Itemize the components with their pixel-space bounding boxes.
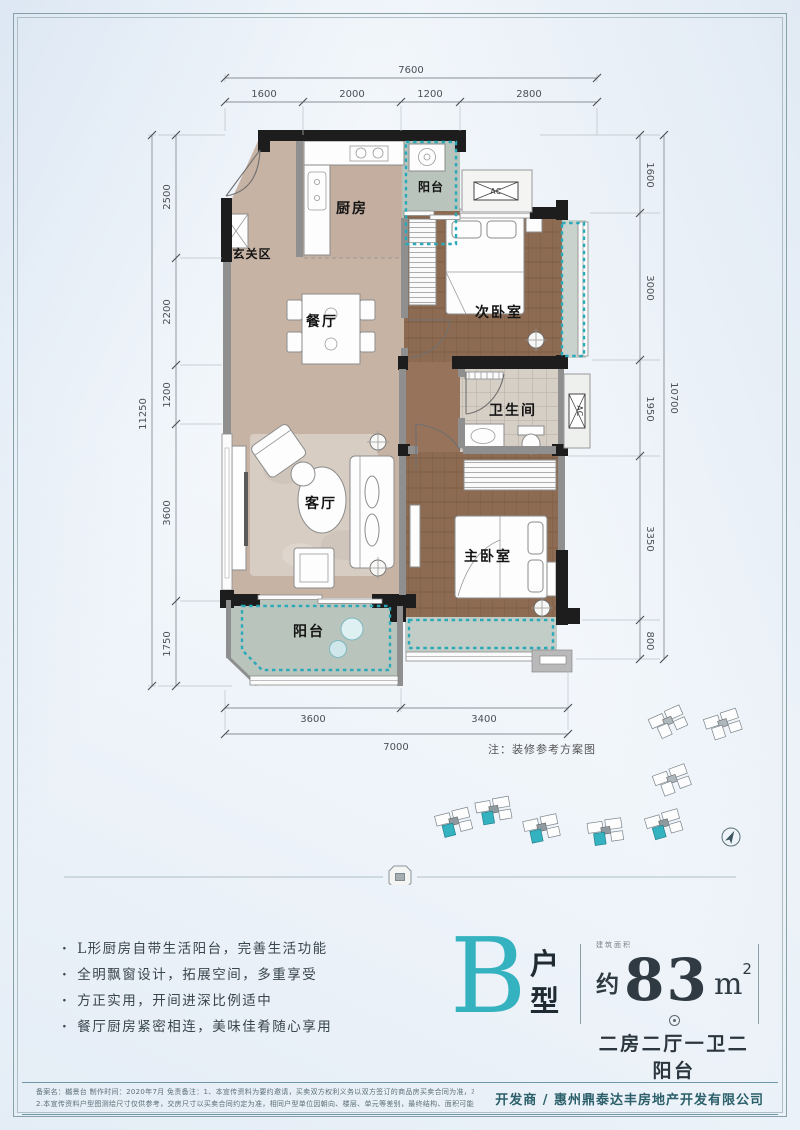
bedroom2-bed: [446, 216, 524, 314]
feature-item: 方正实用，开间进深比例适中: [62, 988, 392, 1014]
site-plan: [434, 705, 742, 846]
label-bedroom2: 次卧室: [475, 304, 523, 321]
dim-bottom-1: 3600: [300, 714, 325, 725]
area-sup: 2: [742, 960, 752, 978]
site-building-2: [475, 796, 513, 826]
side-square-table: [294, 548, 334, 588]
dim-bottom-total: 7000: [383, 742, 408, 753]
dim-right-2: 3000: [644, 275, 655, 300]
site-building-4: [587, 818, 624, 846]
ac-label-right: AC: [575, 405, 584, 416]
site-building-5: [644, 809, 683, 841]
dim-left-total: 11250: [138, 398, 149, 430]
floorplan-svg: AC AC 厨房 阳台 玄关区 餐厅 次卧室 卫生间 客厅 主卧室 阳台: [0, 0, 800, 885]
living-window: [222, 434, 232, 590]
sofa: [350, 456, 394, 568]
label-master: 主卧室: [464, 548, 512, 565]
dim-top: 7600 1600 2000 1200 2800: [221, 65, 601, 135]
footer-bar: 备案名：樾景台 制作时间：2020年7月 免责备注：1、本宣传资料为要约邀请，买…: [22, 1082, 778, 1115]
floor-balcony: [228, 600, 398, 684]
dim-left-3: 1200: [162, 382, 173, 407]
compass-icon: [722, 828, 740, 846]
ornament-icon: [669, 1015, 680, 1026]
area-approx: 约: [596, 972, 619, 998]
divider-vertical: [580, 944, 581, 1024]
feature-item: 全明飘窗设计，拓展空间，多重享受: [62, 962, 392, 988]
washing-machine: [409, 144, 445, 171]
dim-top-4: 2800: [516, 89, 541, 100]
dim-right-4: 3350: [644, 526, 655, 551]
label-kitchen: 厨房: [336, 200, 368, 217]
dim-right-total: 10700: [668, 382, 679, 414]
side-round-table: [291, 462, 315, 486]
label-bath: 卫生间: [489, 402, 537, 419]
area-value: 约 83 m2: [594, 946, 754, 1014]
area-note: 建筑面积: [596, 940, 632, 950]
master-bay-window: [406, 650, 572, 672]
disclaimer-line-1: 备案名：樾景台 制作时间：2020年7月 免责备注：1、本宣传资料为要约邀请，买…: [36, 1087, 474, 1099]
dim-left-2: 2200: [162, 299, 173, 324]
bedroom2-bench: [526, 218, 542, 232]
bedroom2-wardrobe: [409, 219, 436, 305]
master-tv-bench: [410, 505, 420, 567]
floor-master-bay: [405, 617, 557, 652]
unit-info: B 户 型 建筑面积 约 83 m2 二房二厅一卫二阳台: [450, 934, 780, 1034]
divider-vertical: [758, 944, 759, 1024]
seal-emblem-icon: [389, 866, 411, 885]
site-building-6: [648, 705, 689, 741]
dim-top-1: 1600: [251, 89, 276, 100]
feature-item: 餐厅厨房紧密相连，美味佳肴随心享用: [62, 1014, 392, 1040]
label-kitchen-balcony: 阳台: [418, 179, 444, 194]
unit-letter: B: [450, 928, 526, 1024]
dim-right-5: 800: [644, 631, 655, 650]
master-wardrobe: [464, 460, 556, 490]
balcony-window: [250, 676, 398, 685]
area-block: 建筑面积 约 83 m2 二房二厅一卫二阳台: [594, 938, 754, 1083]
developer-name: 开发商 / 惠州鼎泰达丰房地产开发有限公司: [495, 1089, 778, 1108]
unit-type-char: 户: [530, 950, 559, 979]
ac-platform-top: AC: [462, 170, 532, 212]
divider: [64, 866, 736, 885]
floorplan-poster: AC AC 厨房 阳台 玄关区 餐厅 次卧室 卫生间 客厅 主卧室 阳台: [0, 0, 800, 1130]
master-nightstand: [547, 562, 556, 596]
area-number: 83: [624, 946, 709, 1014]
dim-left: 11250 2500 2200 1200 3600 1750: [138, 131, 232, 690]
dim-left-1: 2500: [162, 184, 173, 209]
plan-note: 注：装修参考方案图: [488, 742, 596, 756]
tv: [244, 472, 248, 546]
ac-platform-right: AC: [564, 374, 590, 448]
feature-item: L形厨房自带生活阳台，完善生活功能: [62, 936, 392, 962]
dim-left-4: 3600: [162, 500, 173, 525]
dim-left-5: 1750: [162, 631, 173, 656]
area-unit: m: [714, 967, 742, 1002]
site-building-7: [703, 708, 743, 741]
dim-right-3: 1950: [644, 396, 655, 421]
site-building-3: [523, 814, 561, 845]
disclaimer-text: 备案名：樾景台 制作时间：2020年7月 免责备注：1、本宣传资料为要约邀请，买…: [22, 1087, 474, 1111]
layout-description: 二房二厅一卫二阳台: [594, 1029, 754, 1083]
label-dining: 餐厅: [305, 313, 338, 330]
dim-bottom-2: 3400: [471, 714, 496, 725]
dim-top-total: 7600: [398, 65, 423, 76]
dim-top-2: 2000: [339, 89, 364, 100]
dim-right-1: 1600: [644, 162, 655, 187]
dim-top-3: 1200: [417, 89, 442, 100]
ac-label-top: AC: [490, 187, 501, 196]
unit-type-label: 户 型: [530, 950, 559, 1016]
label-balcony: 阳台: [293, 623, 325, 640]
site-building-1: [434, 807, 473, 839]
unit-type-char: 型: [530, 987, 559, 1016]
tv-cabinet: [232, 446, 246, 570]
label-entry: 玄关区: [232, 246, 271, 261]
label-living: 客厅: [304, 495, 337, 512]
disclaimer-line-2: 2.本宣传资料户型图测绘尺寸仅供参考，交房尺寸以买卖合同约定为准，相同户型单位因…: [36, 1099, 474, 1111]
feature-list: L形厨房自带生活阳台，完善生活功能 全明飘窗设计，拓展空间，多重享受 方正实用，…: [62, 936, 392, 1040]
bath-sink-counter: [462, 424, 504, 448]
site-building-8: [652, 764, 692, 798]
